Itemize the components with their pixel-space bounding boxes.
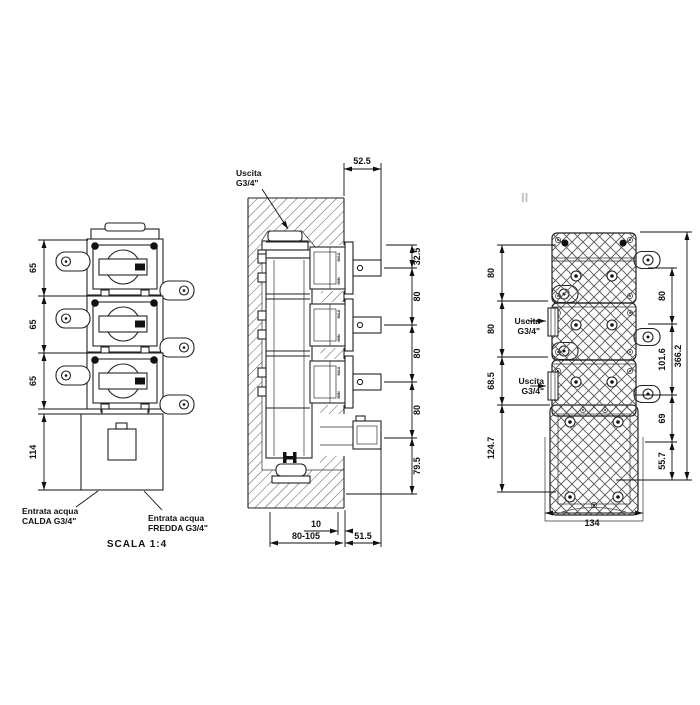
valve-installation-drawing: II 65 65 65 114: [0, 0, 700, 700]
min-marking: MIN: [336, 334, 341, 341]
module-plate-2: [552, 303, 660, 360]
dim-depth-range: 80-105: [292, 531, 320, 541]
dim-face-offset: 68.5: [486, 372, 496, 390]
dim-face-pitch-1: 80: [486, 268, 496, 278]
front-view-dimensions: 65 65 65 114: [28, 240, 88, 490]
hot-inlet-callout: Entrata acqua CALDA G3/4": [22, 491, 98, 526]
dim-sec-pitch-3: 80: [412, 405, 422, 415]
dim-width: 134: [584, 518, 599, 528]
dim-sec-pitch-1: 80: [412, 291, 422, 301]
outlet-port-lower: [548, 372, 558, 400]
min-marking: MIN: [336, 277, 341, 284]
outlet-callout-upper: Uscita G3/4": [514, 316, 546, 336]
cold-inlet-callout: Entrata acqua FREDDA G3/4": [144, 491, 208, 533]
outlet-port-upper: [548, 308, 558, 336]
dim-face-box: 124.7: [486, 437, 496, 460]
svg-text:Uscita: Uscita: [236, 168, 262, 178]
svg-text:Entrata acqua: Entrata acqua: [148, 513, 204, 523]
svg-text:Uscita: Uscita: [518, 376, 544, 386]
scale-note: SCALA 1:4: [107, 539, 167, 550]
dim-right-mid: 101.6: [657, 348, 667, 371]
dim-right-low: 69: [657, 413, 667, 423]
face-view: Uscita G3/4" Uscita G3/4" 80 80 68.5 124…: [486, 232, 692, 528]
max-marking: MAX: [336, 309, 341, 318]
dim-pitch-3: 65: [28, 376, 38, 386]
svg-text:G3/4": G3/4": [522, 386, 544, 396]
module-plate-1: [552, 233, 660, 303]
dim-protrusion: 52.5: [353, 156, 371, 166]
svg-text:FREDDA G3/4": FREDDA G3/4": [148, 523, 208, 533]
dim-right-pitch: 80: [657, 291, 667, 301]
svg-text:Entrata acqua: Entrata acqua: [22, 506, 78, 516]
front-view: 65 65 65 114 Entrata acqua CALDA G3/4" E…: [22, 223, 208, 550]
dim-pitch-2: 65: [28, 319, 38, 329]
max-marking: MAX: [336, 252, 341, 261]
dim-box-height: 114: [28, 445, 38, 460]
mixer-box: [81, 414, 163, 490]
module-plate-3: [552, 360, 660, 416]
dim-overall: 366.2: [673, 345, 683, 368]
front-view-body: [56, 223, 194, 490]
svg-text:CALDA G3/4": CALDA G3/4": [22, 516, 76, 526]
dim-pitch-1: 65: [28, 263, 38, 273]
dim-stub: 51.5: [354, 531, 372, 541]
max-marking: MAX: [336, 366, 341, 375]
svg-text:G3/4": G3/4": [236, 178, 258, 188]
min-marking: MIN: [336, 391, 341, 398]
section-view: MAX MIN MAX MIN MAX MIN Uscita G3/4": [236, 156, 422, 547]
dim-right-bottom: 55.7: [657, 452, 667, 470]
dim-top-offset: 32.5: [412, 248, 422, 266]
svg-text:G3/4": G3/4": [518, 326, 540, 336]
outlet-callout-lower: Uscita G3/4": [518, 376, 546, 396]
dim-face-pitch-2: 80: [486, 324, 496, 334]
dim-sec-bottom: 79.5: [412, 457, 422, 475]
technical-drawing-page: II 65 65 65 114: [0, 0, 700, 700]
dim-plaster: 10: [311, 519, 321, 529]
bottom-plate: [550, 405, 638, 515]
print-artifact-mark: II: [521, 190, 528, 205]
dim-sec-pitch-2: 80: [412, 348, 422, 358]
